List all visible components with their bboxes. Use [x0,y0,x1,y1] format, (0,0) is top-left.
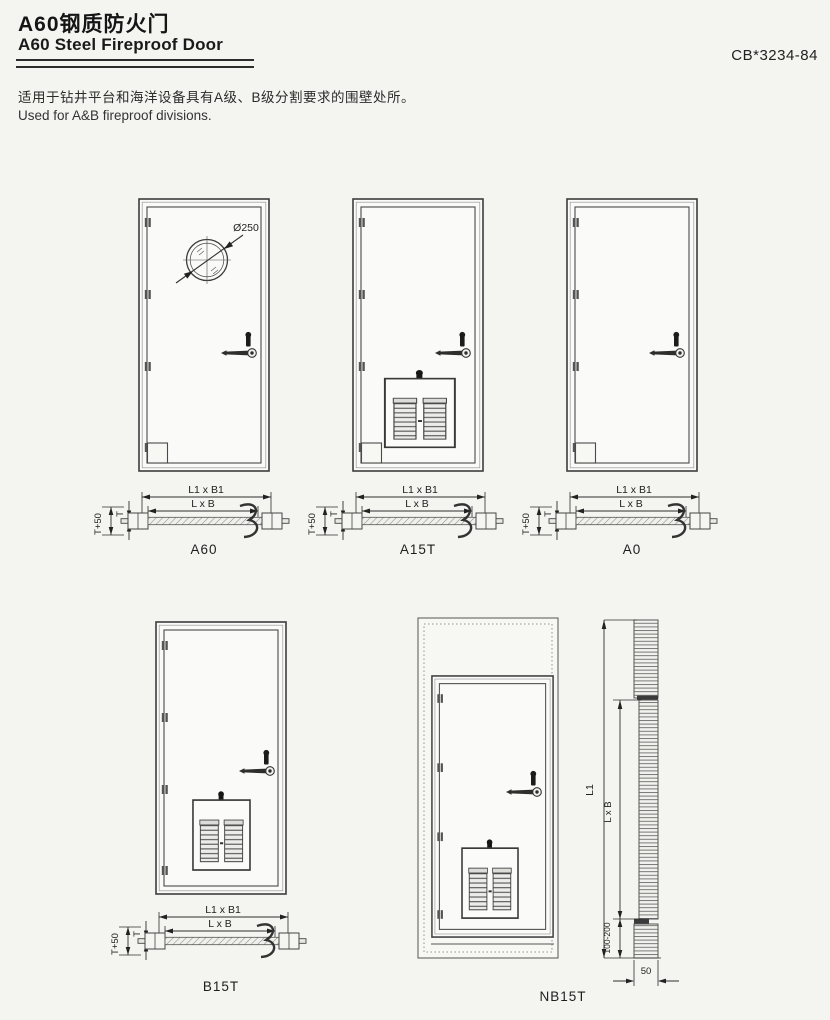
kick-plate [362,443,382,463]
door-a15t-louver [385,370,455,447]
cross-section-a0 [521,484,717,540]
page-background: A60钢质防火门 A60 Steel Fireproof Door CB*323… [0,0,830,1020]
dimension-sill-width: 50 [613,960,679,986]
label-a15t: A15T [400,542,436,557]
door-nb15t-louver [462,839,518,918]
label-nb15t: NB15T [539,989,586,1004]
label-b15t: B15T [203,979,239,994]
door-a60-front-view: Ø250 [139,199,269,471]
nb15t-vertical-section: L1 L x B 100-200 [584,620,679,986]
wall-above-door-section [634,620,658,698]
dim-lxb-label: L x B [603,801,614,822]
label-a0: A0 [623,542,642,557]
dimension-lxb-vertical: L x B [603,700,642,919]
kick-plate [576,443,596,463]
dim-gap-label: 100-200 [602,922,612,953]
dimension-bottom-gap: 100-200 [602,919,622,958]
door-nb15t-front-view [418,618,558,958]
catalog-page: { "page": { "background": "#f4f4f1", "li… [0,0,830,1020]
technical-drawings: L1 x B1 L x B T+50 T [0,0,830,1020]
door-b15t-louver [193,791,250,870]
kick-plate [148,443,168,463]
label-a60: A60 [190,542,217,557]
cross-section-a15t [307,484,503,540]
cross-section-a60 [93,484,289,540]
top-joint [637,696,658,700]
dim-50-label: 50 [641,966,652,977]
door-b15t-front-view [156,622,286,894]
door-a0-front-view [567,199,697,471]
door-a15t-front-view [353,199,483,471]
cross-section-b15t [110,904,306,960]
dim-l1-label: L1 [584,784,596,796]
porthole-diameter-label: Ø250 [233,222,259,234]
door-leaf-vertical-section [639,700,658,919]
wall-below-door-section [634,924,658,958]
